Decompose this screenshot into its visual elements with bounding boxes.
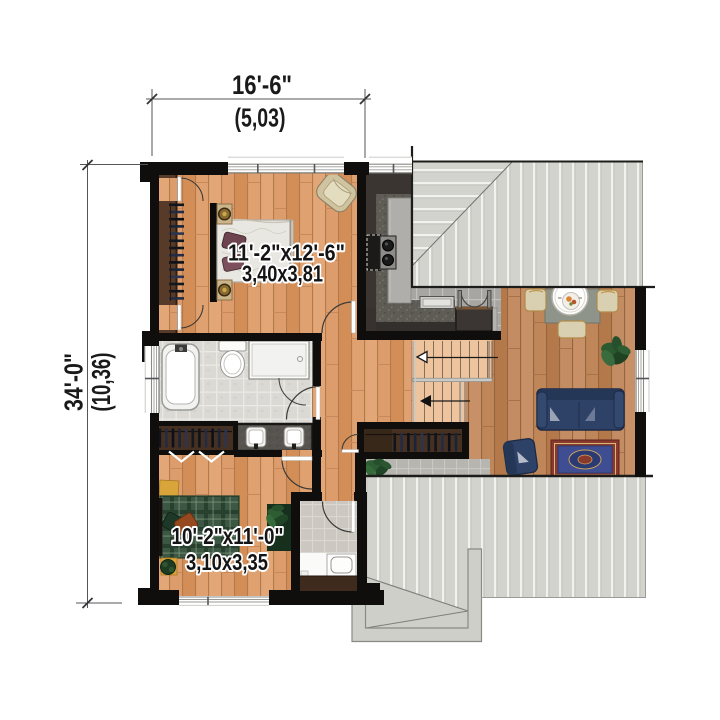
svg-text:3,10x3,35: 3,10x3,35	[186, 549, 268, 575]
svg-text:34'-0": 34'-0"	[59, 353, 89, 411]
svg-text:3,40x3,81: 3,40x3,81	[242, 261, 323, 287]
svg-text:(10,36): (10,36)	[86, 353, 116, 412]
svg-text:10'-2"x11'-0": 10'-2"x11'-0"	[172, 523, 284, 549]
svg-text:(5,03): (5,03)	[235, 103, 286, 133]
svg-text:16'-6": 16'-6"	[232, 70, 292, 100]
